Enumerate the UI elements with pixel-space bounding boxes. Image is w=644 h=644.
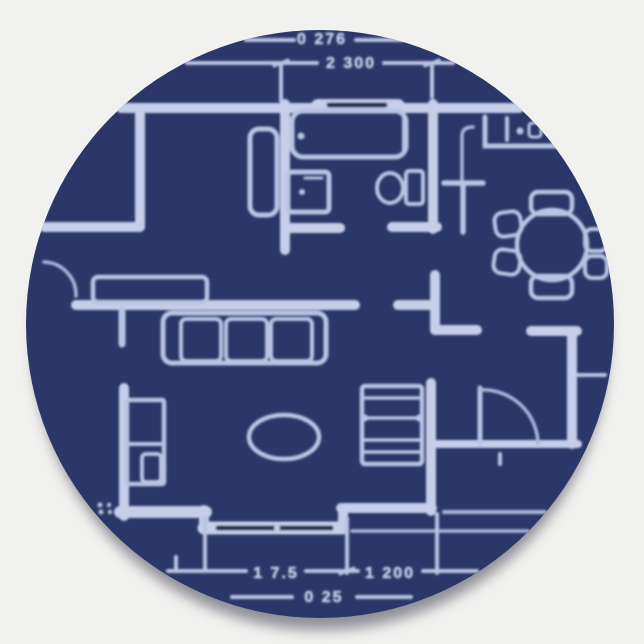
svg-text:1 7.5: 1 7.5: [253, 565, 299, 582]
svg-text:0 276: 0 276: [297, 31, 347, 48]
svg-text:2 300: 2 300: [326, 55, 376, 72]
svg-text:0 25: 0 25: [304, 589, 343, 606]
svg-text:1 200: 1 200: [365, 565, 415, 582]
